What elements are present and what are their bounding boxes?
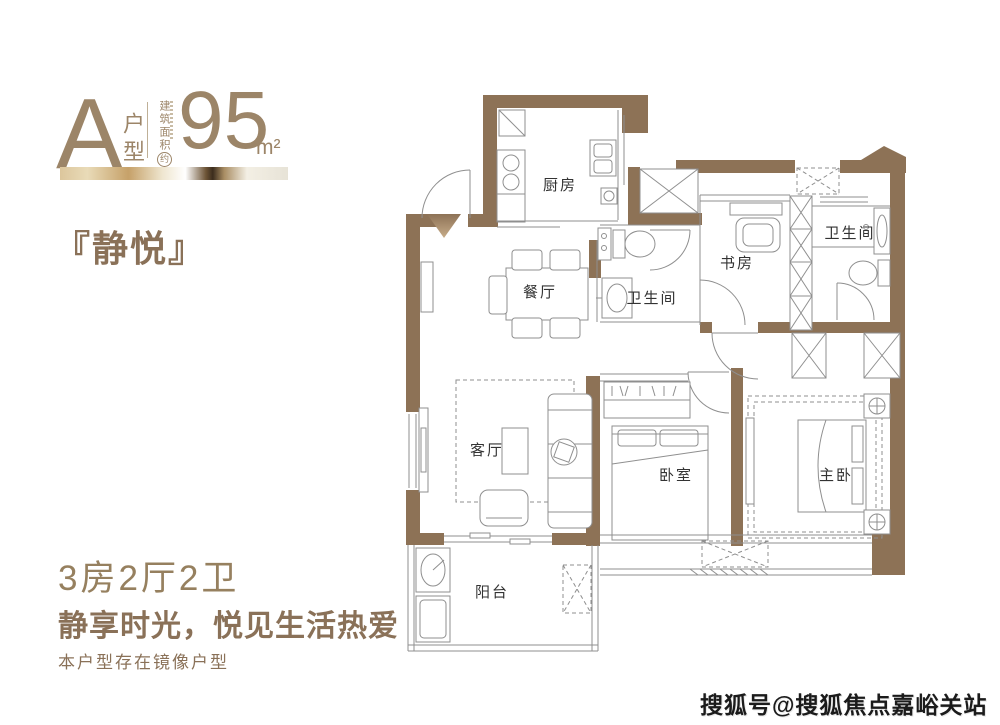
room-label-living: 客厅 (470, 442, 504, 459)
bedroom: 卧室 (604, 382, 708, 540)
room-label-balcony: 阳台 (475, 584, 509, 601)
shaft-box (640, 169, 698, 213)
flyer-page: A 户型 建筑面积 约 95 m² 『静悦』 3房2厅2卫 静享时光，悦见生活热… (0, 0, 1000, 725)
room-label-bedroom: 卧室 (659, 467, 693, 484)
master-bedroom: 主卧 (746, 333, 900, 538)
closet-strip (790, 196, 812, 330)
room-label-bath-2: 卫生间 (824, 225, 875, 242)
floor-plan: 厨房 餐厅 (0, 0, 1000, 725)
study: 书房 (700, 195, 790, 325)
entry-door (421, 170, 470, 312)
dining: 餐厅 (489, 250, 588, 338)
bath-1: 卫生间 (596, 225, 700, 322)
room-label-bath-1: 卫生间 (626, 290, 677, 307)
room-label-kitchen: 厨房 (543, 177, 577, 194)
room-label-study: 书房 (720, 255, 754, 272)
room-label-dining: 餐厅 (523, 284, 557, 301)
room-label-master: 主卧 (819, 467, 853, 484)
kitchen: 厨房 (497, 110, 624, 227)
balcony: 阳台 (408, 545, 598, 651)
living: 客厅 (419, 380, 592, 544)
